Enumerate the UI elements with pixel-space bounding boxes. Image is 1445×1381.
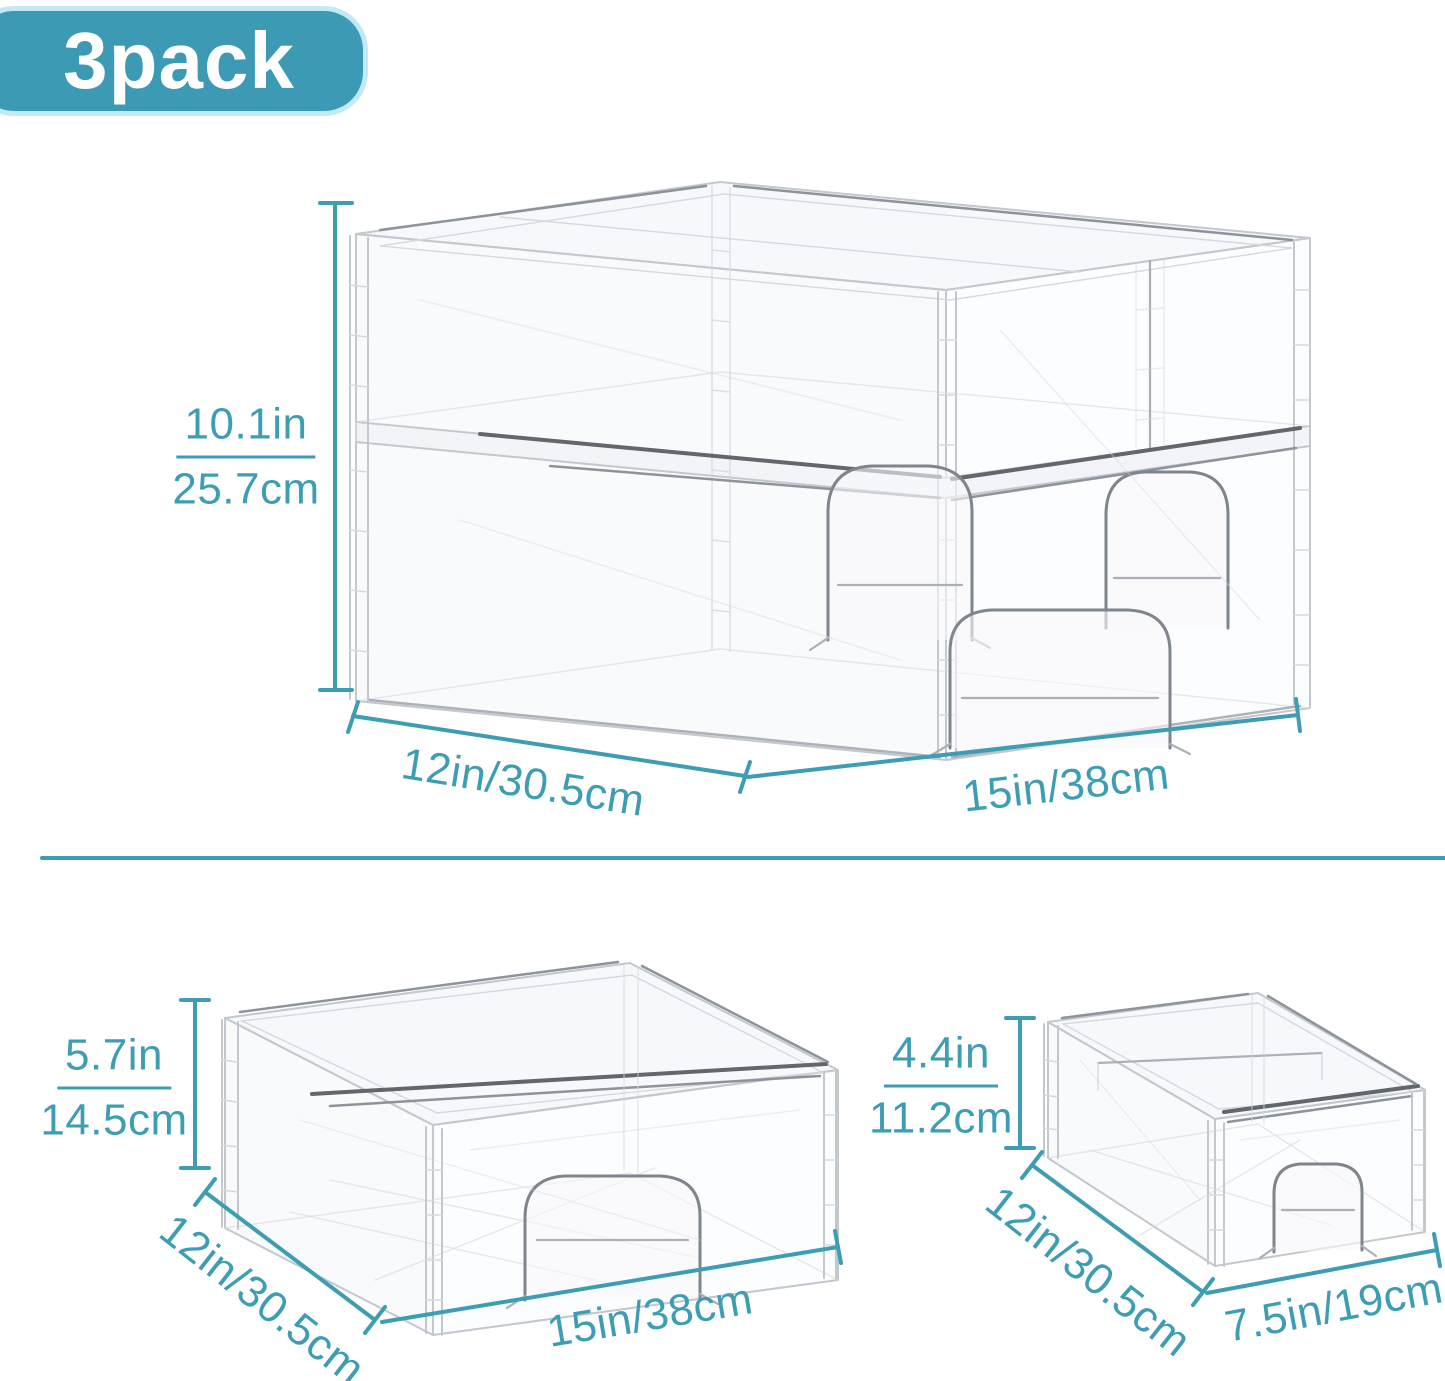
small-drawer-illustration (1044, 993, 1425, 1266)
stack-organizer-illustration (350, 182, 1310, 760)
large-drawer-height-inches: 5.7in (57, 1031, 171, 1090)
diagram-artwork (0, 0, 1445, 1381)
stack-height-cm: 25.7cm (172, 465, 319, 515)
large-drawer-height-cm: 14.5cm (40, 1096, 187, 1146)
small-drawer-height-inches: 4.4in (884, 1029, 998, 1088)
large-drawer-height-label: 5.7in 14.5cm (40, 1031, 187, 1146)
small-drawer-height-cm: 11.2cm (869, 1094, 1013, 1144)
small-drawer-height-label: 4.4in 11.2cm (869, 1029, 1013, 1144)
stack-height-label: 10.1in 25.7cm (172, 400, 319, 515)
stack-height-dimension-line (320, 203, 352, 690)
stack-height-inches: 10.1in (177, 400, 316, 459)
product-dimension-diagram: 3pack (0, 0, 1445, 1381)
